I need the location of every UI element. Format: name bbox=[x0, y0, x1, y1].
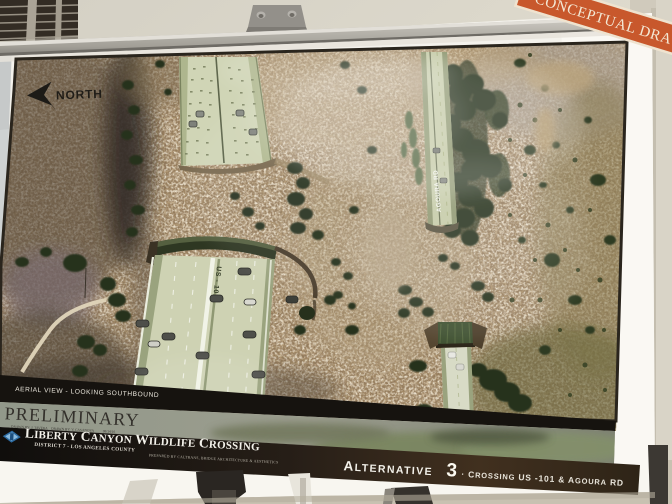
svg-text:NORTH: NORTH bbox=[56, 87, 103, 103]
